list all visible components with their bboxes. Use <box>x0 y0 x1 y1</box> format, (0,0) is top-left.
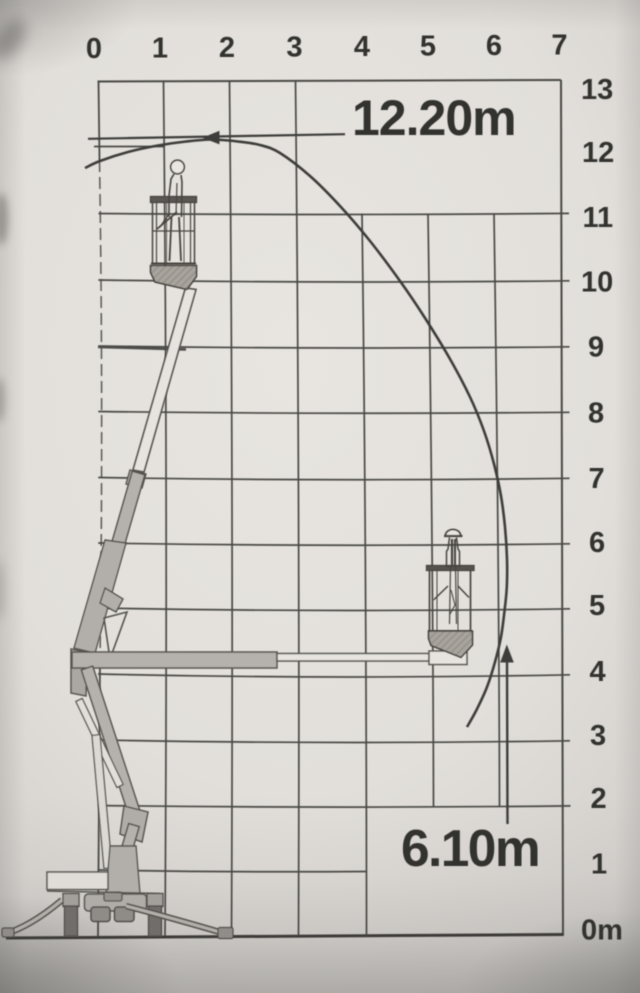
svg-text:1: 1 <box>152 33 168 65</box>
svg-text:5: 5 <box>589 590 605 622</box>
svg-text:7: 7 <box>589 463 605 495</box>
svg-text:6.10m: 6.10m <box>401 819 539 877</box>
svg-text:9: 9 <box>588 332 604 364</box>
svg-text:0: 0 <box>86 33 102 65</box>
svg-text:6: 6 <box>589 527 605 559</box>
svg-text:5: 5 <box>420 31 436 63</box>
svg-text:4: 4 <box>354 31 370 63</box>
svg-text:1: 1 <box>591 849 607 881</box>
svg-text:0m: 0m <box>581 915 623 947</box>
svg-text:10: 10 <box>581 267 613 299</box>
svg-text:7: 7 <box>551 30 567 62</box>
svg-text:8: 8 <box>588 398 604 430</box>
svg-text:2: 2 <box>219 32 235 64</box>
svg-text:12.20m: 12.20m <box>352 90 516 146</box>
svg-text:6: 6 <box>486 30 502 62</box>
svg-text:4: 4 <box>590 656 606 688</box>
svg-text:2: 2 <box>591 783 607 815</box>
svg-text:12: 12 <box>582 137 614 169</box>
svg-text:3: 3 <box>286 32 302 64</box>
svg-text:13: 13 <box>581 74 613 106</box>
svg-text:3: 3 <box>590 720 606 752</box>
svg-text:11: 11 <box>583 202 614 234</box>
